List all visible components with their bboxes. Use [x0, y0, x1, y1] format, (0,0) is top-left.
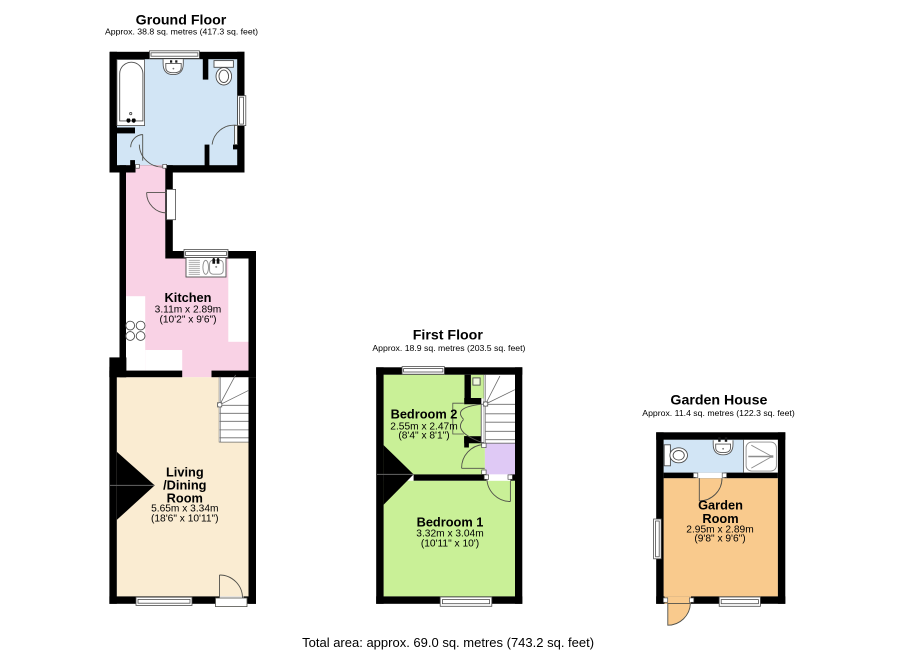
- svg-text:Garden House: Garden House: [670, 392, 767, 408]
- svg-text:(18'6" x 10'11"): (18'6" x 10'11"): [151, 513, 219, 524]
- svg-text:(10'11" x 10'): (10'11" x 10'): [421, 538, 479, 549]
- svg-text:(9'8" x 9'6"): (9'8" x 9'6"): [694, 534, 745, 545]
- svg-text:Bedroom 1: Bedroom 1: [417, 515, 484, 530]
- svg-text:Kitchen: Kitchen: [165, 290, 212, 305]
- svg-text:Approx. 38.8 sq. metres (417.3: Approx. 38.8 sq. metres (417.3 sq. feet): [105, 27, 258, 37]
- svg-text:Approx. 11.4 sq. metres (122.3: Approx. 11.4 sq. metres (122.3 sq. feet): [642, 408, 795, 418]
- svg-text:(10'2" x 9'6"): (10'2" x 9'6"): [160, 314, 217, 325]
- svg-text:Total area: approx. 69.0 sq. m: Total area: approx. 69.0 sq. metres (743…: [302, 635, 594, 650]
- svg-text:Approx. 18.9 sq. metres (203.5: Approx. 18.9 sq. metres (203.5 sq. feet): [372, 343, 525, 353]
- svg-text:Bedroom 2: Bedroom 2: [391, 406, 458, 421]
- svg-text:(8'4" x 8'1"): (8'4" x 8'1"): [398, 430, 449, 441]
- svg-text:First Floor: First Floor: [413, 328, 484, 344]
